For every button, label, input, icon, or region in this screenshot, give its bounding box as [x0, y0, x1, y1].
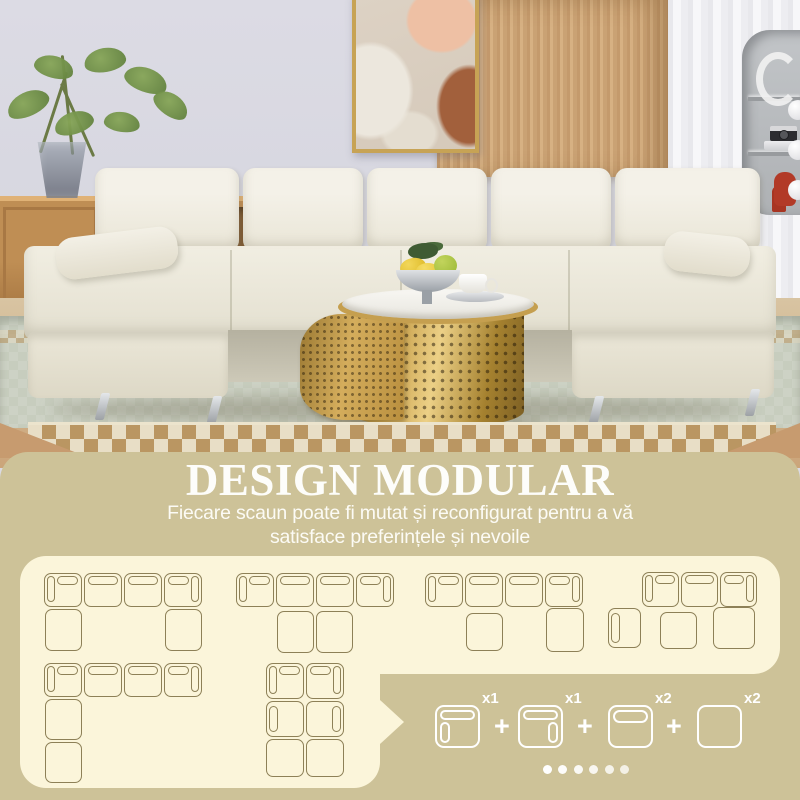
section-title: DESIGN MODULAR — [0, 458, 800, 503]
sofa-module-s — [84, 663, 122, 697]
sofa-module-s — [84, 573, 122, 607]
carousel-dot[interactable] — [574, 765, 583, 774]
sofa-module-sr — [720, 572, 757, 607]
sofa-module-o — [713, 607, 755, 649]
fruit-bowl-stem — [422, 290, 432, 304]
chaise-front-left — [28, 332, 228, 398]
seat-left-armrest-icon — [435, 705, 480, 748]
subtitle-line-2: satisface preferințele și nevoile — [0, 525, 800, 549]
quantity-label: x1 — [482, 690, 499, 707]
plus-separator: + — [666, 713, 682, 740]
product-image: DESIGN MODULAR Fiecare scaun poate fi mu… — [0, 0, 800, 800]
plus-separator: + — [577, 713, 593, 740]
sofa-module-o — [45, 609, 82, 651]
sofa-module-al — [608, 608, 641, 648]
quantity-label: x1 — [565, 690, 582, 707]
sofa-module-sl — [44, 663, 82, 697]
sofa-module-o — [165, 609, 202, 651]
sofa-back-cushion — [491, 168, 611, 252]
sofa-back-cushion — [367, 168, 487, 252]
sofa-module-o — [277, 611, 314, 653]
gold-perforated-screen — [300, 314, 404, 420]
teacup — [459, 274, 487, 293]
sofa-back-cushion — [243, 168, 363, 252]
sofa-module-s — [316, 573, 354, 607]
sofa-module-sr — [306, 663, 344, 699]
camera-lens-icon — [779, 130, 789, 140]
carousel-dot[interactable] — [620, 765, 629, 774]
ottoman-icon — [697, 705, 742, 748]
sofa-module-s — [465, 573, 503, 607]
sofa-module-o — [306, 739, 344, 777]
sofa-module-o — [466, 613, 503, 651]
sofa-module-ar — [306, 701, 344, 737]
seat-seam — [230, 250, 232, 334]
abstract-painting — [352, 0, 479, 153]
plus-separator: + — [494, 713, 510, 740]
sofa-module-s — [124, 663, 162, 697]
teacup-handle — [485, 278, 498, 293]
seat-seam — [568, 250, 570, 334]
subtitle-line-1: Fiecare scaun poate fi mutat și reconfig… — [0, 501, 800, 525]
table-white-top — [342, 289, 534, 319]
seat-backrest-icon — [608, 705, 653, 748]
sofa-module-sl — [642, 572, 679, 607]
sofa-module-o — [266, 739, 304, 777]
white-decor-object — [756, 52, 800, 106]
carousel-dot-active[interactable] — [543, 765, 552, 774]
sofa-module-o — [546, 608, 584, 652]
sofa-module-sl — [44, 573, 82, 607]
seat-right-armrest-icon — [518, 705, 563, 748]
section-subtitle: Fiecare scaun poate fi mutat și reconfig… — [0, 501, 800, 549]
sofa-module-sl — [425, 573, 463, 607]
sofa-module-sr — [164, 663, 202, 697]
sofa-module-sr — [545, 573, 583, 607]
sofa-module-sr — [356, 573, 394, 607]
sofa-module-o — [660, 612, 697, 649]
sofa-module-s — [276, 573, 314, 607]
sofa-module-o — [316, 611, 353, 653]
sofa-module-sl — [266, 663, 304, 699]
sofa-module-sl — [236, 573, 274, 607]
sofa-module-s — [505, 573, 543, 607]
quantity-label: x2 — [744, 690, 761, 707]
carousel-dot[interactable] — [605, 765, 614, 774]
sofa-module-o — [45, 742, 82, 783]
sofa-module-s — [124, 573, 162, 607]
quantity-label: x2 — [655, 690, 672, 707]
sofa-module-s — [681, 572, 718, 607]
sofa-module-o — [45, 699, 82, 740]
sofa-module-al — [266, 701, 304, 737]
chaise-front-right — [572, 332, 774, 398]
sofa-module-sr — [164, 573, 202, 607]
